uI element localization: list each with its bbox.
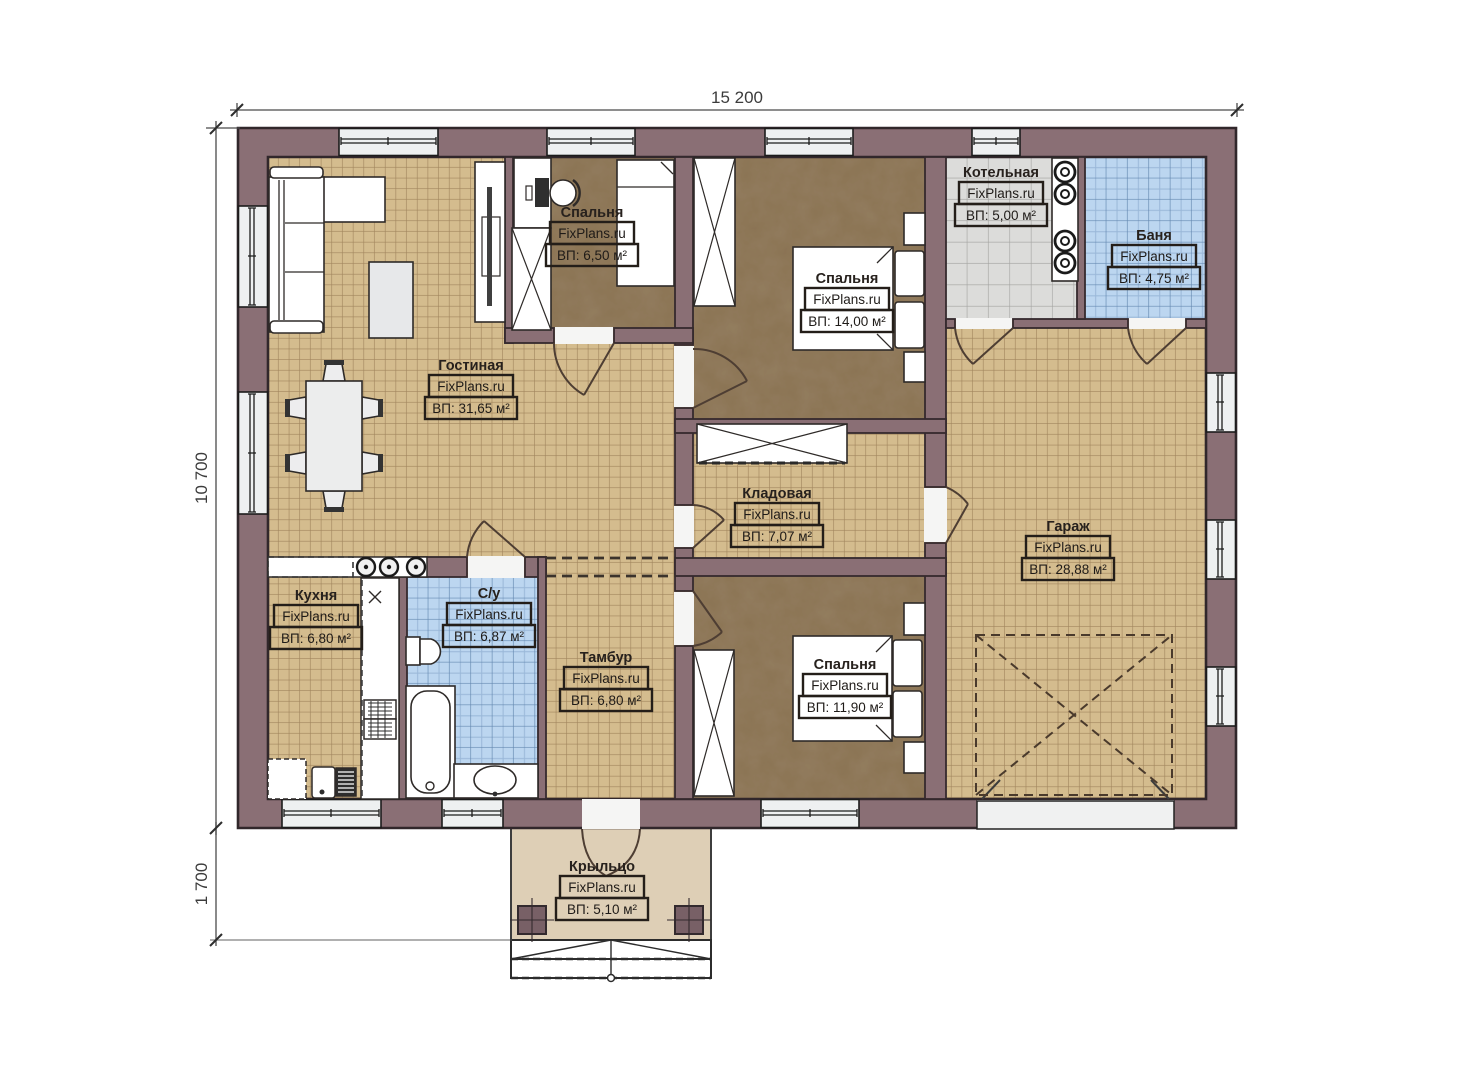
svg-text:FixPlans.ru: FixPlans.ru [558, 226, 626, 241]
svg-text:FixPlans.ru: FixPlans.ru [1120, 249, 1188, 264]
svg-text:ВП: 4,75 м²: ВП: 4,75 м² [1119, 271, 1190, 286]
svg-text:FixPlans.ru: FixPlans.ru [455, 607, 523, 622]
svg-text:Крыльцо: Крыльцо [569, 859, 635, 875]
svg-text:FixPlans.ru: FixPlans.ru [572, 671, 640, 686]
svg-text:Тамбур: Тамбур [580, 650, 633, 666]
svg-text:Спальня: Спальня [816, 271, 879, 287]
svg-text:ВП: 5,10 м²: ВП: 5,10 м² [567, 902, 638, 917]
svg-text:Кладовая: Кладовая [742, 486, 811, 502]
svg-text:ВП: 28,88 м²: ВП: 28,88 м² [1029, 562, 1107, 577]
svg-text:ВП: 6,80 м²: ВП: 6,80 м² [281, 631, 352, 646]
svg-text:FixPlans.ru: FixPlans.ru [811, 678, 879, 693]
svg-text:ВП: 31,65 м²: ВП: 31,65 м² [432, 401, 510, 416]
svg-text:Гостиная: Гостиная [438, 358, 504, 374]
svg-text:ВП: 6,50 м²: ВП: 6,50 м² [557, 248, 628, 263]
svg-text:FixPlans.ru: FixPlans.ru [437, 379, 505, 394]
svg-text:Кухня: Кухня [295, 588, 337, 604]
svg-text:Спальня: Спальня [561, 205, 624, 221]
svg-text:ВП: 6,80 м²: ВП: 6,80 м² [571, 693, 642, 708]
svg-text:С/у: С/у [478, 586, 501, 602]
svg-text:1 700: 1 700 [192, 863, 211, 906]
svg-text:FixPlans.ru: FixPlans.ru [743, 507, 811, 522]
svg-text:FixPlans.ru: FixPlans.ru [967, 186, 1035, 201]
svg-text:ВП: 6,87 м²: ВП: 6,87 м² [454, 629, 525, 644]
svg-text:ВП: 11,90 м²: ВП: 11,90 м² [807, 700, 884, 715]
svg-text:ВП: 14,00 м²: ВП: 14,00 м² [808, 314, 886, 329]
svg-text:10 700: 10 700 [192, 452, 211, 504]
svg-text:Баня: Баня [1136, 228, 1172, 244]
svg-text:Спальня: Спальня [814, 657, 877, 673]
svg-text:FixPlans.ru: FixPlans.ru [1034, 540, 1102, 555]
svg-text:FixPlans.ru: FixPlans.ru [813, 292, 881, 307]
svg-text:ВП: 7,07 м²: ВП: 7,07 м² [742, 529, 813, 544]
svg-text:FixPlans.ru: FixPlans.ru [568, 880, 636, 895]
svg-text:15 200: 15 200 [711, 88, 763, 107]
svg-text:Котельная: Котельная [963, 165, 1039, 181]
svg-text:ВП: 5,00 м²: ВП: 5,00 м² [966, 208, 1037, 223]
svg-text:Гараж: Гараж [1046, 519, 1090, 535]
svg-text:FixPlans.ru: FixPlans.ru [282, 609, 350, 624]
